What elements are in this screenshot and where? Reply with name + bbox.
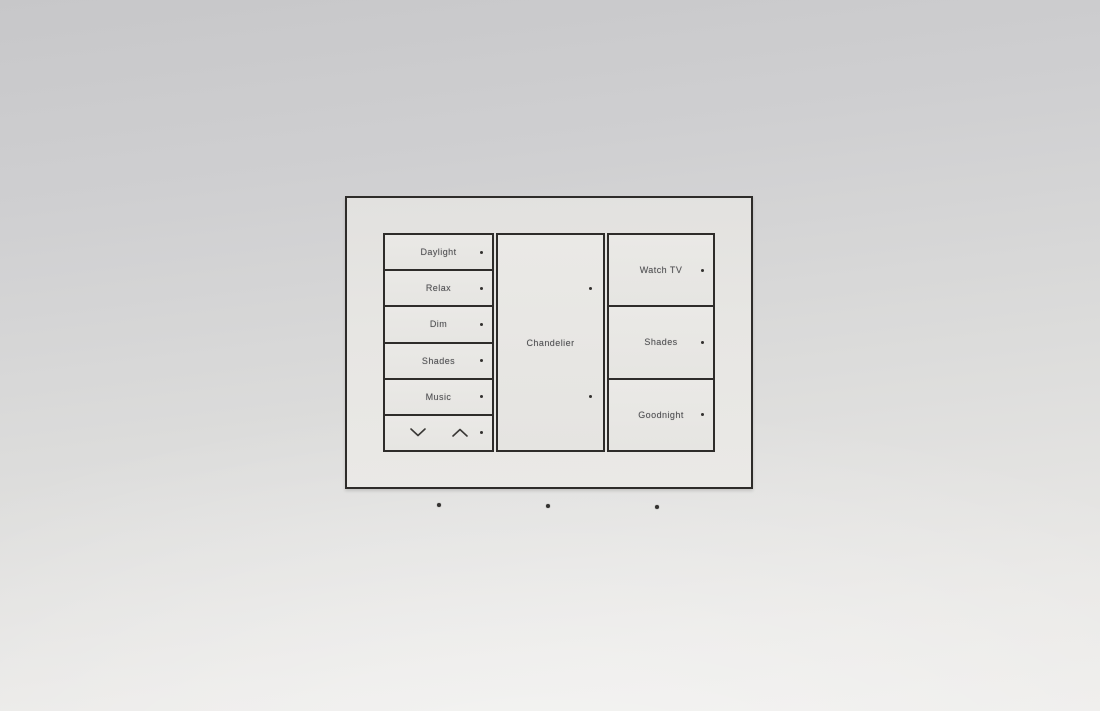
keypad-center-column: Chandelier — [496, 233, 605, 452]
keypad-left-column: Daylight Relax Dim Shades Music — [383, 233, 494, 452]
scene-button-dim[interactable]: Dim — [385, 305, 492, 341]
led-indicator — [480, 251, 483, 254]
raise-button[interactable] — [451, 426, 469, 440]
scene-button-label: Daylight — [420, 247, 456, 257]
chevron-up-icon — [452, 428, 468, 437]
rocker-row — [385, 414, 492, 450]
scene-button-label: Shades — [422, 356, 455, 366]
scene-button-label: Relax — [426, 283, 451, 293]
led-indicator — [701, 269, 704, 272]
led-indicator — [480, 287, 483, 290]
wall-mark-dot — [546, 504, 550, 508]
scene-button-relax[interactable]: Relax — [385, 269, 492, 305]
led-indicator — [480, 431, 483, 434]
scene-button-label: Dim — [430, 319, 447, 329]
scene-button-music[interactable]: Music — [385, 378, 492, 414]
wall-background: Daylight Relax Dim Shades Music — [0, 0, 1100, 711]
scene-button-watch-tv[interactable]: Watch TV — [609, 235, 713, 305]
scene-button-label: Goodnight — [638, 410, 684, 420]
keypad-right-column: Watch TV Shades Goodnight — [607, 233, 715, 452]
wall-mark-dot — [655, 505, 659, 509]
led-indicator — [480, 323, 483, 326]
lower-button[interactable] — [409, 426, 427, 440]
scene-button-label: Watch TV — [640, 265, 683, 275]
led-indicator — [701, 341, 704, 344]
led-indicator — [480, 359, 483, 362]
scene-button-goodnight[interactable]: Goodnight — [609, 378, 713, 450]
led-indicator — [701, 413, 704, 416]
chevron-down-icon — [410, 428, 426, 437]
scene-button-shades-left[interactable]: Shades — [385, 342, 492, 378]
wall-mark-dot — [437, 503, 441, 507]
dimmer-button-chandelier[interactable]: Chandelier — [498, 235, 603, 450]
scene-button-label: Shades — [644, 337, 677, 347]
led-indicator-raise — [589, 287, 592, 290]
dimmer-button-label: Chandelier — [526, 338, 574, 348]
scene-button-shades-right[interactable]: Shades — [609, 305, 713, 377]
led-indicator-lower — [589, 395, 592, 398]
scene-button-label: Music — [426, 392, 452, 402]
led-indicator — [480, 395, 483, 398]
scene-button-daylight[interactable]: Daylight — [385, 235, 492, 269]
keypad-faceplate: Daylight Relax Dim Shades Music — [345, 196, 753, 489]
